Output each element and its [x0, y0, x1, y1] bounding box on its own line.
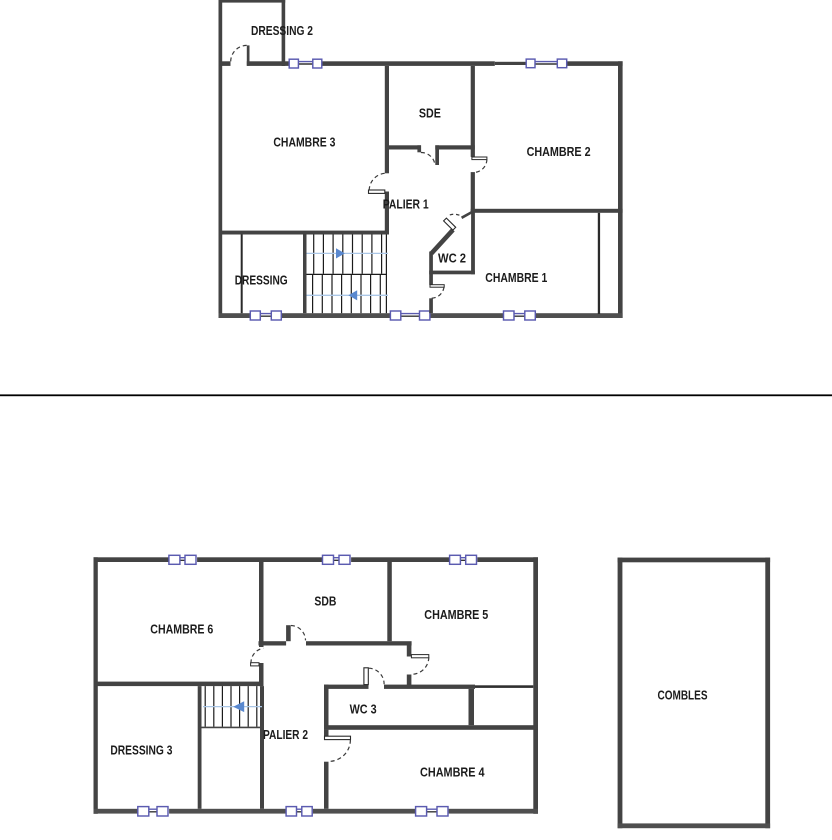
- svg-text:CHAMBRE 5: CHAMBRE 5: [424, 607, 488, 622]
- svg-text:PALIER 1: PALIER 1: [383, 197, 429, 212]
- svg-text:CHAMBRE 1: CHAMBRE 1: [485, 270, 547, 285]
- svg-text:CHAMBRE 6: CHAMBRE 6: [150, 622, 213, 637]
- svg-text:PALIER 2: PALIER 2: [263, 727, 308, 742]
- svg-text:DRESSING: DRESSING: [235, 273, 288, 288]
- svg-text:CHAMBRE 2: CHAMBRE 2: [527, 144, 591, 159]
- svg-text:CHAMBRE 3: CHAMBRE 3: [273, 134, 335, 149]
- svg-text:DRESSING 2: DRESSING 2: [251, 23, 313, 38]
- svg-text:SDB: SDB: [314, 594, 336, 609]
- svg-text:CHAMBRE 4: CHAMBRE 4: [420, 765, 485, 780]
- svg-text:WC 3: WC 3: [350, 702, 377, 717]
- svg-text:COMBLES: COMBLES: [658, 688, 708, 703]
- svg-text:WC 2: WC 2: [438, 251, 466, 266]
- svg-text:SDE: SDE: [419, 105, 441, 120]
- svg-text:DRESSING 3: DRESSING 3: [110, 742, 172, 757]
